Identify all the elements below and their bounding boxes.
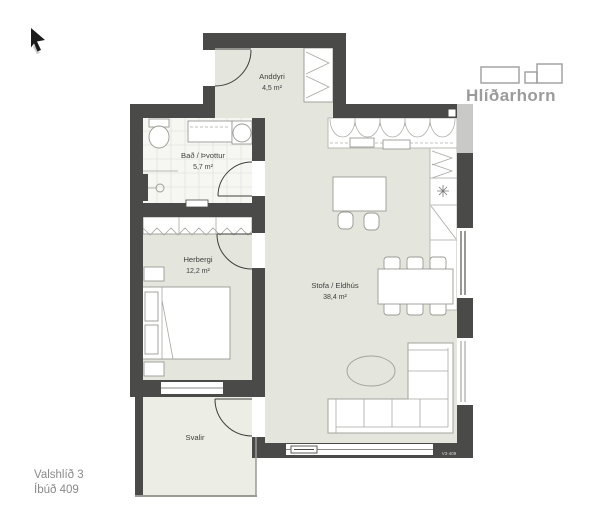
right-window-upper bbox=[457, 228, 473, 298]
dining-chair bbox=[407, 257, 423, 270]
brand-name: Hlíðarhorn bbox=[466, 86, 556, 105]
stool bbox=[364, 213, 379, 230]
shower-glass bbox=[143, 174, 148, 201]
sink-icon bbox=[233, 124, 251, 142]
footer: Valshlíð 3 Íbúð 409 bbox=[34, 469, 84, 496]
kitchen-sink bbox=[383, 140, 410, 149]
plan-tag: V3-409 bbox=[442, 451, 457, 456]
nightstand bbox=[144, 267, 164, 281]
room-label-bedroom: Herbergi bbox=[183, 255, 212, 264]
sliding-glass-door bbox=[286, 444, 433, 455]
balcony-floor bbox=[143, 397, 256, 496]
right-window-lower bbox=[457, 338, 473, 405]
dining-table bbox=[378, 269, 453, 304]
room-label-living: Stofa / Eldhús bbox=[311, 281, 358, 290]
cooktop bbox=[350, 138, 374, 147]
dining-chair bbox=[384, 257, 400, 270]
room-label-bath: Bað / Þvottur bbox=[181, 151, 225, 160]
room-area-bath: 5,7 m² bbox=[193, 164, 214, 171]
building-outline-icon bbox=[481, 64, 562, 83]
floorplan-drawing: Anddyri 4,5 m² Bað / Þvottur 5,7 m² Herb… bbox=[0, 0, 611, 524]
stool bbox=[338, 212, 353, 229]
nightstand bbox=[144, 362, 164, 376]
room-area-living: 38,4 m² bbox=[323, 294, 347, 301]
column-marker bbox=[448, 109, 456, 117]
pillow bbox=[145, 325, 158, 354]
room-label-anddyri: Anddyri bbox=[259, 72, 285, 81]
room-area-anddyri: 4,5 m² bbox=[262, 85, 283, 92]
dining-chair bbox=[430, 257, 446, 270]
dining-set bbox=[378, 257, 453, 315]
brand-logo: Hlíðarhorn bbox=[466, 64, 562, 105]
room-label-balcony: Svalir bbox=[186, 433, 205, 442]
footer-address: Valshlíð 3 bbox=[34, 469, 84, 481]
toilet-icon bbox=[149, 126, 169, 148]
wall-recess bbox=[186, 200, 208, 207]
neighbor-wall bbox=[457, 104, 473, 153]
kitchen-counter bbox=[328, 118, 457, 149]
room-area-bedroom: 12,2 m² bbox=[186, 268, 210, 275]
washer-counter bbox=[188, 121, 232, 142]
entry-wardrobe bbox=[304, 48, 333, 102]
pillow bbox=[145, 292, 158, 321]
floorplan-viewer: Anddyri 4,5 m² Bað / Þvottur 5,7 m² Herb… bbox=[0, 0, 611, 524]
footer-unit: Íbúð 409 bbox=[34, 483, 79, 496]
bedroom-window bbox=[158, 382, 226, 394]
bedroom-wardrobe bbox=[143, 217, 252, 234]
cursor-pointer-icon bbox=[31, 28, 45, 54]
